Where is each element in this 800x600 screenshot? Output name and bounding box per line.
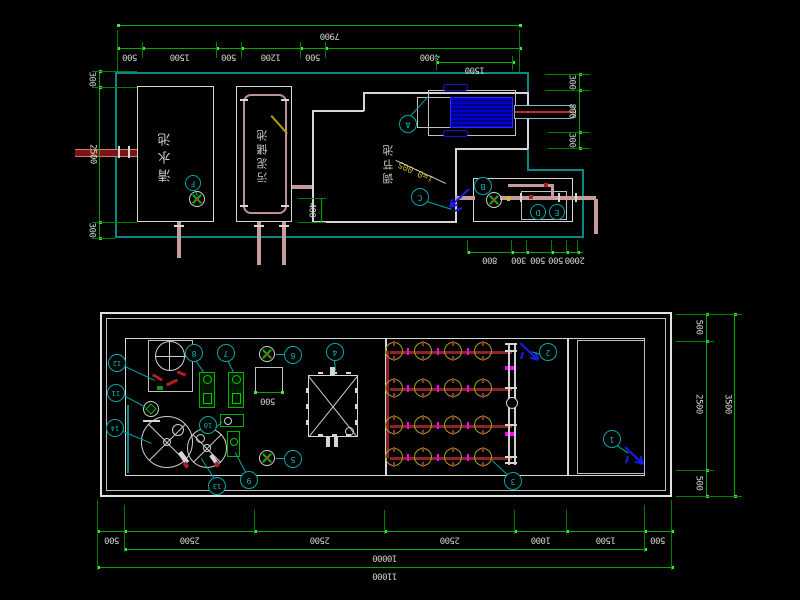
dim-tick — [254, 391, 257, 394]
flange-tick — [318, 372, 323, 374]
extension-line — [551, 240, 552, 254]
extension-line — [512, 56, 513, 70]
diffuser-stem — [393, 415, 395, 420]
construction-line — [155, 356, 186, 357]
pump-discharge-pipe — [500, 196, 596, 200]
diffuser-stem — [422, 415, 424, 420]
callout-1: 1 — [603, 430, 621, 448]
diffuser-stem — [452, 393, 454, 398]
extension-line — [514, 510, 515, 534]
dim-overall-width: 7900 — [320, 31, 340, 40]
callout-label: F — [191, 179, 196, 187]
diffuser-stem — [422, 462, 424, 467]
diffuser-stem — [422, 356, 424, 361]
flange-tick — [318, 434, 323, 436]
flange-tick — [306, 420, 308, 425]
small-device-icon — [227, 431, 240, 457]
aeration-header-pipe — [386, 351, 389, 458]
dim-bottom-seg: 500 — [531, 255, 546, 264]
diffuser-stem — [452, 462, 454, 467]
magenta-marker — [467, 348, 469, 355]
callout-14: 14 — [106, 419, 124, 437]
diffuser-stem — [393, 447, 395, 452]
flange-tick — [505, 343, 517, 345]
flow-arrow-icon — [622, 444, 650, 470]
magenta-marker — [437, 422, 439, 429]
marker-dot — [507, 196, 510, 201]
flange-tick — [505, 387, 517, 389]
magenta-marker — [407, 385, 409, 392]
extension-line — [566, 510, 567, 534]
dim-right: 300 — [567, 75, 576, 90]
flange-tick — [281, 99, 289, 101]
extension-line — [545, 90, 590, 91]
diffuser-stem — [482, 341, 484, 346]
extension-line — [676, 470, 714, 471]
pump-icon — [259, 450, 275, 466]
flange-tick — [174, 225, 184, 227]
dimension-line — [437, 62, 513, 63]
callout-label: C — [418, 193, 423, 201]
dim-top-seg: 500 — [306, 52, 321, 61]
screen-bracket — [443, 130, 468, 137]
mixer-stub — [326, 437, 330, 447]
extension-line — [548, 132, 590, 133]
callout-label: 10 — [204, 421, 212, 429]
diffuser-stem — [482, 462, 484, 467]
extension-line — [92, 71, 137, 72]
callout-7: 7 — [217, 344, 235, 362]
callout-label: 11 — [112, 389, 120, 397]
callout-4: 4 — [326, 343, 344, 361]
callout-label: 8 — [192, 349, 197, 357]
flange-tick — [355, 388, 357, 393]
boundary-right-lower-edge — [582, 169, 584, 238]
flange-tick — [240, 99, 248, 101]
dim-left: 300 — [87, 223, 96, 238]
flange-tick — [306, 388, 308, 393]
extension-line — [671, 500, 672, 570]
regulating-tank-wall — [455, 148, 528, 150]
diffuser-stem — [393, 378, 395, 383]
dim-top-seg: 1200 — [261, 52, 281, 61]
valve-icon — [529, 195, 533, 199]
flange-tick — [558, 193, 560, 202]
dimension-line — [125, 549, 645, 550]
dim-wall-offset: 400 — [307, 203, 316, 218]
flange-tick — [118, 146, 120, 158]
extension-line — [124, 505, 125, 552]
magenta-marker — [437, 385, 439, 392]
dimension-line — [118, 48, 520, 49]
dim-tick — [281, 391, 284, 394]
flange-tick — [332, 372, 337, 374]
callout-13: 13 — [208, 477, 226, 495]
dosing-pump-icon — [220, 414, 244, 427]
callout-label: B — [481, 182, 486, 190]
drain-pipe — [257, 222, 261, 265]
callout-label: 13 — [213, 482, 221, 490]
dim-left: 300 — [87, 72, 96, 87]
callout-d: D — [530, 204, 546, 220]
extension-line — [676, 341, 714, 342]
callout-label: 7 — [224, 349, 229, 357]
construction-line — [169, 342, 170, 370]
pump-icon — [189, 191, 205, 207]
magenta-marker — [467, 385, 469, 392]
callout-label: 4 — [333, 348, 338, 356]
diffuser-stem — [452, 341, 454, 346]
tank-partition-wall — [567, 338, 569, 476]
boundary-step-edge — [527, 169, 584, 171]
pump-discharge-pipe — [594, 199, 598, 234]
pump-icon — [259, 346, 275, 362]
flange-tick — [575, 193, 577, 202]
flange-tick — [332, 434, 337, 436]
flange-tick — [520, 193, 522, 202]
flange-tick — [346, 372, 351, 374]
mixer-stub — [334, 437, 338, 447]
magenta-marker — [467, 454, 469, 461]
dim-left: 2500 — [88, 144, 97, 164]
diffuser-stem — [393, 356, 395, 361]
dim-bv-right: 2500 — [694, 394, 703, 414]
dimension-line — [118, 25, 520, 26]
label-regulating-tank: 调节池 — [381, 142, 397, 184]
callout-8: 8 — [185, 344, 203, 362]
screen-bracket — [443, 84, 468, 91]
flange-tick — [505, 350, 517, 352]
pump-branch-pipe — [551, 186, 554, 196]
diffuser-stem — [422, 447, 424, 452]
callout-12: 12 — [108, 354, 126, 372]
dim-bv-bottom: 1500 — [596, 535, 616, 544]
extension-line — [676, 496, 742, 497]
diffuser-stem — [452, 356, 454, 361]
regulating-tank-wall — [312, 221, 457, 223]
extension-line — [519, 30, 520, 72]
cad-drawing-canvas: 清水池 污泥储池 调节池 i=0.005 A B C D E F 7900 50… — [0, 0, 800, 600]
metering-pump-icon — [199, 372, 215, 408]
regulating-tank-wall — [312, 110, 364, 112]
extension-line — [254, 510, 255, 534]
label-sludge-storage-tank: 污泥储池 — [255, 127, 271, 183]
magenta-marker — [467, 422, 469, 429]
dim-top-seg: 500 — [222, 52, 237, 61]
diffuser-stem — [393, 341, 395, 346]
dim-bv-overall-total: 11000 — [373, 571, 398, 580]
flange-tick — [505, 456, 517, 458]
dim-bottom-seg: 2000 — [565, 255, 585, 264]
extension-line — [545, 74, 590, 75]
extension-line — [384, 510, 385, 534]
dim-bottom-seg: 800 — [483, 255, 498, 264]
dim-tick — [117, 24, 120, 27]
magenta-marker — [437, 454, 439, 461]
dim-platform: 500 — [261, 396, 276, 405]
magenta-marker — [437, 348, 439, 355]
dim-bv-right: 500 — [694, 320, 703, 335]
drain-pipe — [177, 222, 181, 258]
magenta-marker — [407, 348, 409, 355]
dim-bv-bottom: 2500 — [440, 535, 460, 544]
diffuser-stem — [422, 393, 424, 398]
callout-c: C — [411, 188, 429, 206]
screen-equipment-body — [450, 97, 513, 128]
extension-line — [511, 240, 512, 254]
boundary-bottom-edge — [115, 236, 584, 238]
dim-bv-bottom: 500 — [651, 535, 666, 544]
equipment-detail — [157, 386, 163, 390]
dim-bv-bottom: 1000 — [531, 535, 551, 544]
diffuser-stem — [452, 415, 454, 420]
dim-bv-bottom: 500 — [105, 535, 120, 544]
callout-11: 11 — [107, 384, 125, 402]
dim-right: 300 — [567, 133, 576, 148]
diffuser-stem — [393, 393, 395, 398]
callout-label: 6 — [291, 351, 296, 359]
callout-a: A — [399, 115, 417, 133]
extension-line — [298, 198, 326, 199]
dim-top-seg: 500 — [123, 52, 138, 61]
dim-bv-right-total: 3500 — [723, 394, 732, 414]
extension-line — [117, 30, 118, 72]
dimension-line — [98, 567, 672, 568]
regulating-tank-wall — [363, 92, 365, 111]
extension-line — [92, 238, 115, 239]
diffuser-stem — [452, 378, 454, 383]
flange-tick — [306, 404, 308, 409]
flange-tick — [505, 424, 517, 426]
diffuser-stem — [482, 447, 484, 452]
callout-b: B — [474, 177, 492, 195]
extension-line — [548, 148, 590, 149]
diffuser-stem — [452, 430, 454, 435]
construction-line — [396, 160, 446, 184]
callout-label: 2 — [546, 348, 551, 356]
flow-arrow-icon — [443, 186, 473, 214]
callout-e: E — [549, 204, 565, 220]
callout-6: 6 — [284, 346, 302, 364]
callout-2: 2 — [539, 343, 557, 361]
diffuser-stem — [422, 341, 424, 346]
flange-tick — [346, 434, 351, 436]
callout-label: 12 — [113, 359, 121, 367]
extension-line — [97, 500, 98, 570]
flange-tick — [240, 205, 248, 207]
flange-tick — [279, 225, 289, 227]
flange-tick — [355, 420, 357, 425]
pump-icon — [486, 192, 502, 208]
callout-f: F — [185, 175, 201, 191]
flange-tick — [505, 462, 517, 464]
callout-label: A — [406, 120, 411, 128]
callout-9: 9 — [240, 471, 258, 489]
magenta-marker — [505, 432, 515, 436]
dim-bottom-seg: 300 — [512, 255, 527, 264]
diffuser-stem — [482, 378, 484, 383]
flange-tick — [128, 146, 130, 158]
extension-line — [325, 42, 326, 58]
callout-3: 3 — [504, 472, 522, 490]
flange-tick — [254, 225, 264, 227]
dim-bv-bottom: 2500 — [310, 535, 330, 544]
dimension-line — [255, 392, 282, 393]
callout-label: 5 — [291, 455, 296, 463]
dimension-line — [734, 314, 735, 496]
dim-bv-inner-total: 10000 — [373, 553, 398, 562]
dimension-line — [321, 198, 322, 222]
outlet-pipe-centerline — [515, 111, 574, 113]
dim-bv-right: 500 — [694, 476, 703, 491]
extension-line — [526, 240, 527, 254]
valve-icon — [544, 183, 548, 187]
dim-bottom-seg: 500 — [549, 255, 564, 264]
extension-line — [142, 42, 143, 58]
extension-line — [298, 222, 326, 223]
callout-label: E — [555, 208, 560, 216]
dim-bv-bottom: 2500 — [180, 535, 200, 544]
magenta-marker — [407, 454, 409, 461]
extension-line — [92, 87, 137, 88]
dim-tick — [519, 24, 522, 27]
diffuser-stem — [482, 356, 484, 361]
extension-line — [566, 240, 567, 254]
dimension-line — [99, 71, 100, 238]
flange-tick — [355, 404, 357, 409]
metering-pump-icon — [228, 372, 244, 408]
dim-top-sub: 1500 — [465, 65, 485, 74]
callout-label: D — [536, 208, 541, 216]
transfer-pipe — [292, 185, 312, 189]
extension-line — [676, 314, 742, 315]
diffuser-stem — [422, 430, 424, 435]
diffuser-stem — [482, 415, 484, 420]
extension-line — [467, 240, 468, 254]
header-fitting — [506, 397, 518, 409]
flange-tick — [281, 205, 289, 207]
extension-line — [577, 240, 578, 254]
callout-5: 5 — [284, 450, 302, 468]
water-line — [127, 405, 129, 473]
dimension-line — [579, 74, 580, 148]
dim-right: 800 — [567, 104, 576, 119]
regulating-tank-wall — [527, 92, 529, 149]
label-clear-water-tank: 清水池 — [157, 128, 176, 182]
extension-line — [436, 56, 437, 70]
extension-line — [92, 222, 137, 223]
callout-10: 10 — [199, 416, 217, 434]
extension-line — [300, 42, 301, 58]
diffuser-stem — [393, 462, 395, 467]
diffuser-stem — [393, 430, 395, 435]
magenta-marker — [407, 422, 409, 429]
diffuser-stem — [452, 447, 454, 452]
platform-box — [255, 367, 283, 393]
diffuser-stem — [422, 378, 424, 383]
diffuser-stem — [482, 430, 484, 435]
callout-label: 1 — [610, 435, 615, 443]
extension-line — [241, 42, 242, 58]
callout-label: 14 — [111, 424, 119, 432]
magenta-marker — [505, 366, 515, 370]
extension-line — [644, 505, 645, 552]
callout-label: 3 — [511, 477, 516, 485]
dim-top-seg: 1500 — [170, 52, 190, 61]
extension-line — [216, 42, 217, 58]
diffuser-stem — [482, 393, 484, 398]
callout-label: 9 — [247, 476, 252, 484]
drain-pipe — [282, 222, 286, 265]
